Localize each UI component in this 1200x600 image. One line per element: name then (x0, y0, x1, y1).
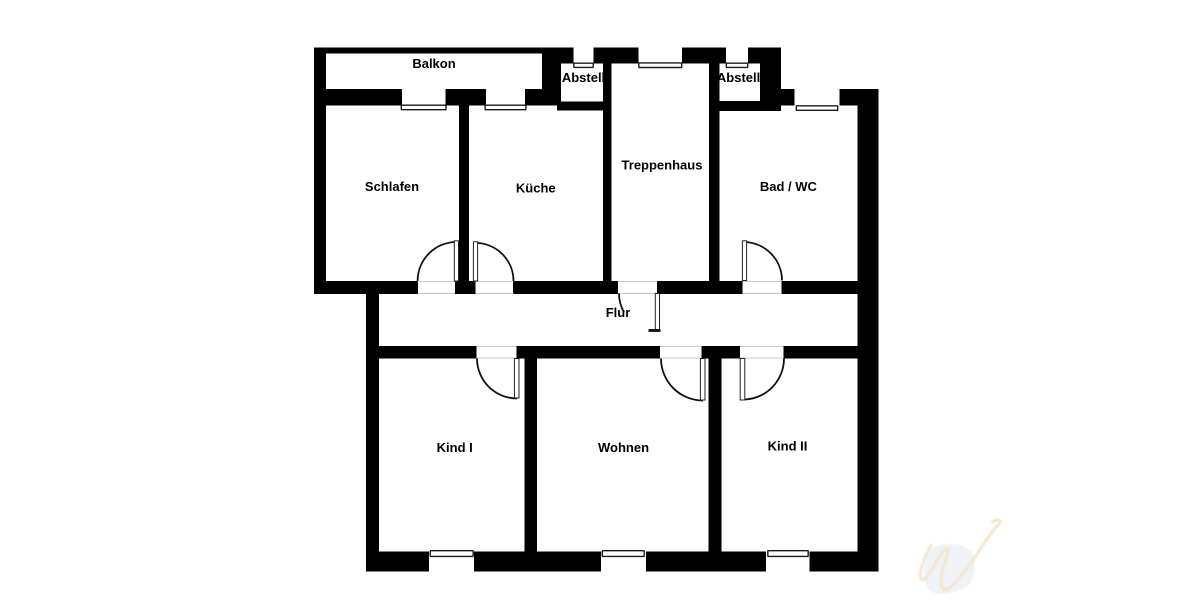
svg-text:Schlafen: Schlafen (365, 179, 419, 194)
svg-text:Abstell: Abstell (562, 70, 605, 85)
svg-text:Flur: Flur (606, 305, 631, 320)
svg-text:Wohnen: Wohnen (598, 440, 649, 455)
svg-text:Küche: Küche (516, 181, 556, 196)
svg-text:Kind II: Kind II (768, 439, 808, 454)
svg-text:Abstell: Abstell (717, 70, 760, 85)
svg-text:Kind I: Kind I (437, 440, 473, 455)
svg-text:Balkon: Balkon (412, 56, 455, 71)
svg-text:Treppenhaus: Treppenhaus (622, 158, 703, 173)
svg-text:Bad / WC: Bad / WC (760, 179, 818, 194)
